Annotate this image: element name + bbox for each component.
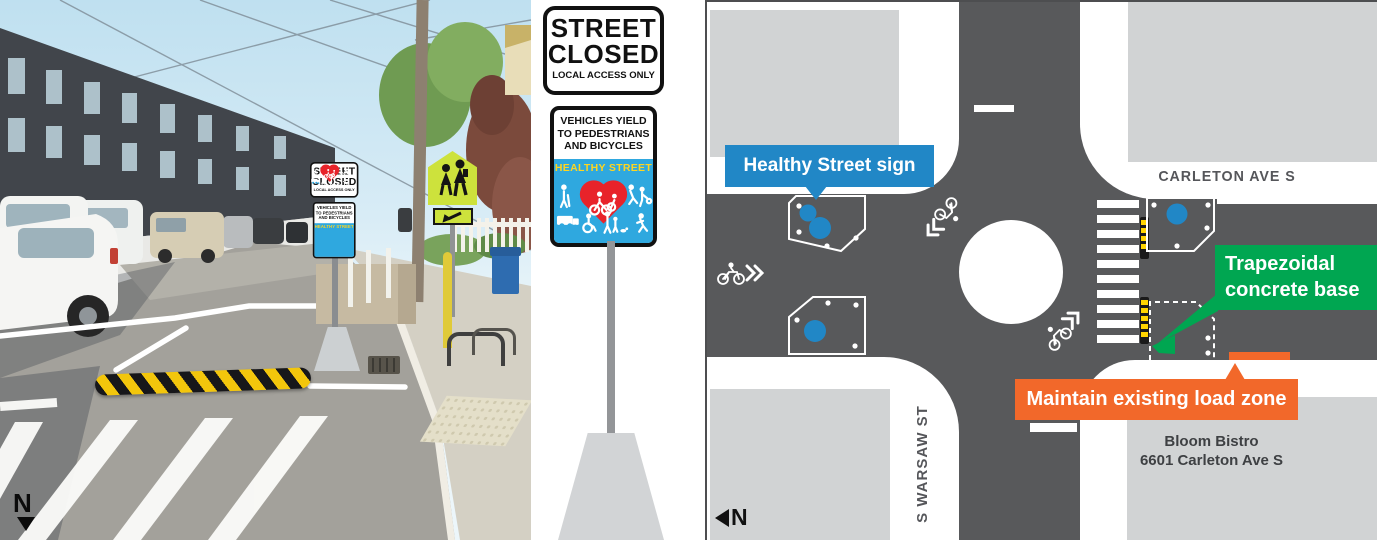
business-name: Bloom Bistro [1084, 432, 1339, 451]
north-arrow-icon [715, 509, 729, 527]
intersection-plan-map: Healthy Street sign Trapezoidal concrete… [705, 0, 1377, 540]
healthy-street-sign-detail: STREET CLOSED LOCAL ACCESS ONLY VEHICLES… [543, 6, 673, 247]
sign-text: TO PEDESTRIANS [554, 128, 653, 141]
map-north-arrow: N [715, 506, 748, 529]
street-photo-panel: STREET CLOSED LOCAL ACCESS ONLY VEHICLES… [0, 0, 531, 540]
sign-text: AND BICYCLES [314, 216, 354, 221]
callout-trapezoidal-concrete-base: Trapezoidal concrete base [1215, 245, 1377, 310]
callout-maintain-load-zone: Maintain existing load zone [1015, 379, 1298, 420]
healthy-street-label: HEALTHY STREET [554, 162, 653, 174]
planter-post [386, 248, 391, 298]
bike-rack [472, 328, 516, 355]
sign-text: VEHICLES YIELD [554, 115, 653, 128]
sign-text: STREET [547, 15, 660, 41]
photo-north-arrow: N [13, 490, 35, 531]
business-label: Bloom Bistro 6601 Carleton Ave S [1084, 432, 1339, 470]
callout-healthy-street-sign: Healthy Street sign [725, 145, 934, 187]
downward-arrow-plaque [433, 208, 473, 225]
recycle-bin [492, 251, 519, 294]
street-name-carleton: CARLETON AVE S [1151, 168, 1303, 185]
sign-text: CLOSED [547, 41, 660, 67]
sign-pole [332, 257, 338, 329]
trapezoidal-concrete-base [558, 433, 664, 540]
street-name-warsaw: S WARSAW ST [914, 399, 936, 529]
north-label: N [13, 490, 35, 516]
healthy-street-plan-graphic: STREET CLOSED LOCAL ACCESS ONLY VEHICLES… [0, 0, 1377, 540]
street-closed-sign: STREET CLOSED LOCAL ACCESS ONLY [543, 6, 664, 95]
healthy-street-sign-mockup: STREET CLOSED LOCAL ACCESS ONLY VEHICLES… [310, 162, 370, 262]
north-label: N [731, 506, 748, 529]
yield-healthy-street-sign: VEHICLES YIELD TO PEDESTRIANS AND BICYCL… [313, 202, 356, 258]
yield-healthy-street-sign: VEHICLES YIELD TO PEDESTRIANS AND BICYCL… [550, 106, 657, 247]
business-address: 6601 Carleton Ave S [1084, 451, 1339, 470]
sign-text: AND BICYCLES [554, 140, 653, 153]
sign-pole [607, 241, 615, 434]
healthy-street-heart-icons [554, 174, 653, 240]
sign-detail-panel: STREET CLOSED LOCAL ACCESS ONLY VEHICLES… [531, 0, 705, 540]
healthy-street-label: HEALTHY STREET [314, 224, 354, 229]
north-arrow-icon [17, 517, 35, 531]
sign-text: LOCAL ACCESS ONLY [547, 70, 660, 81]
